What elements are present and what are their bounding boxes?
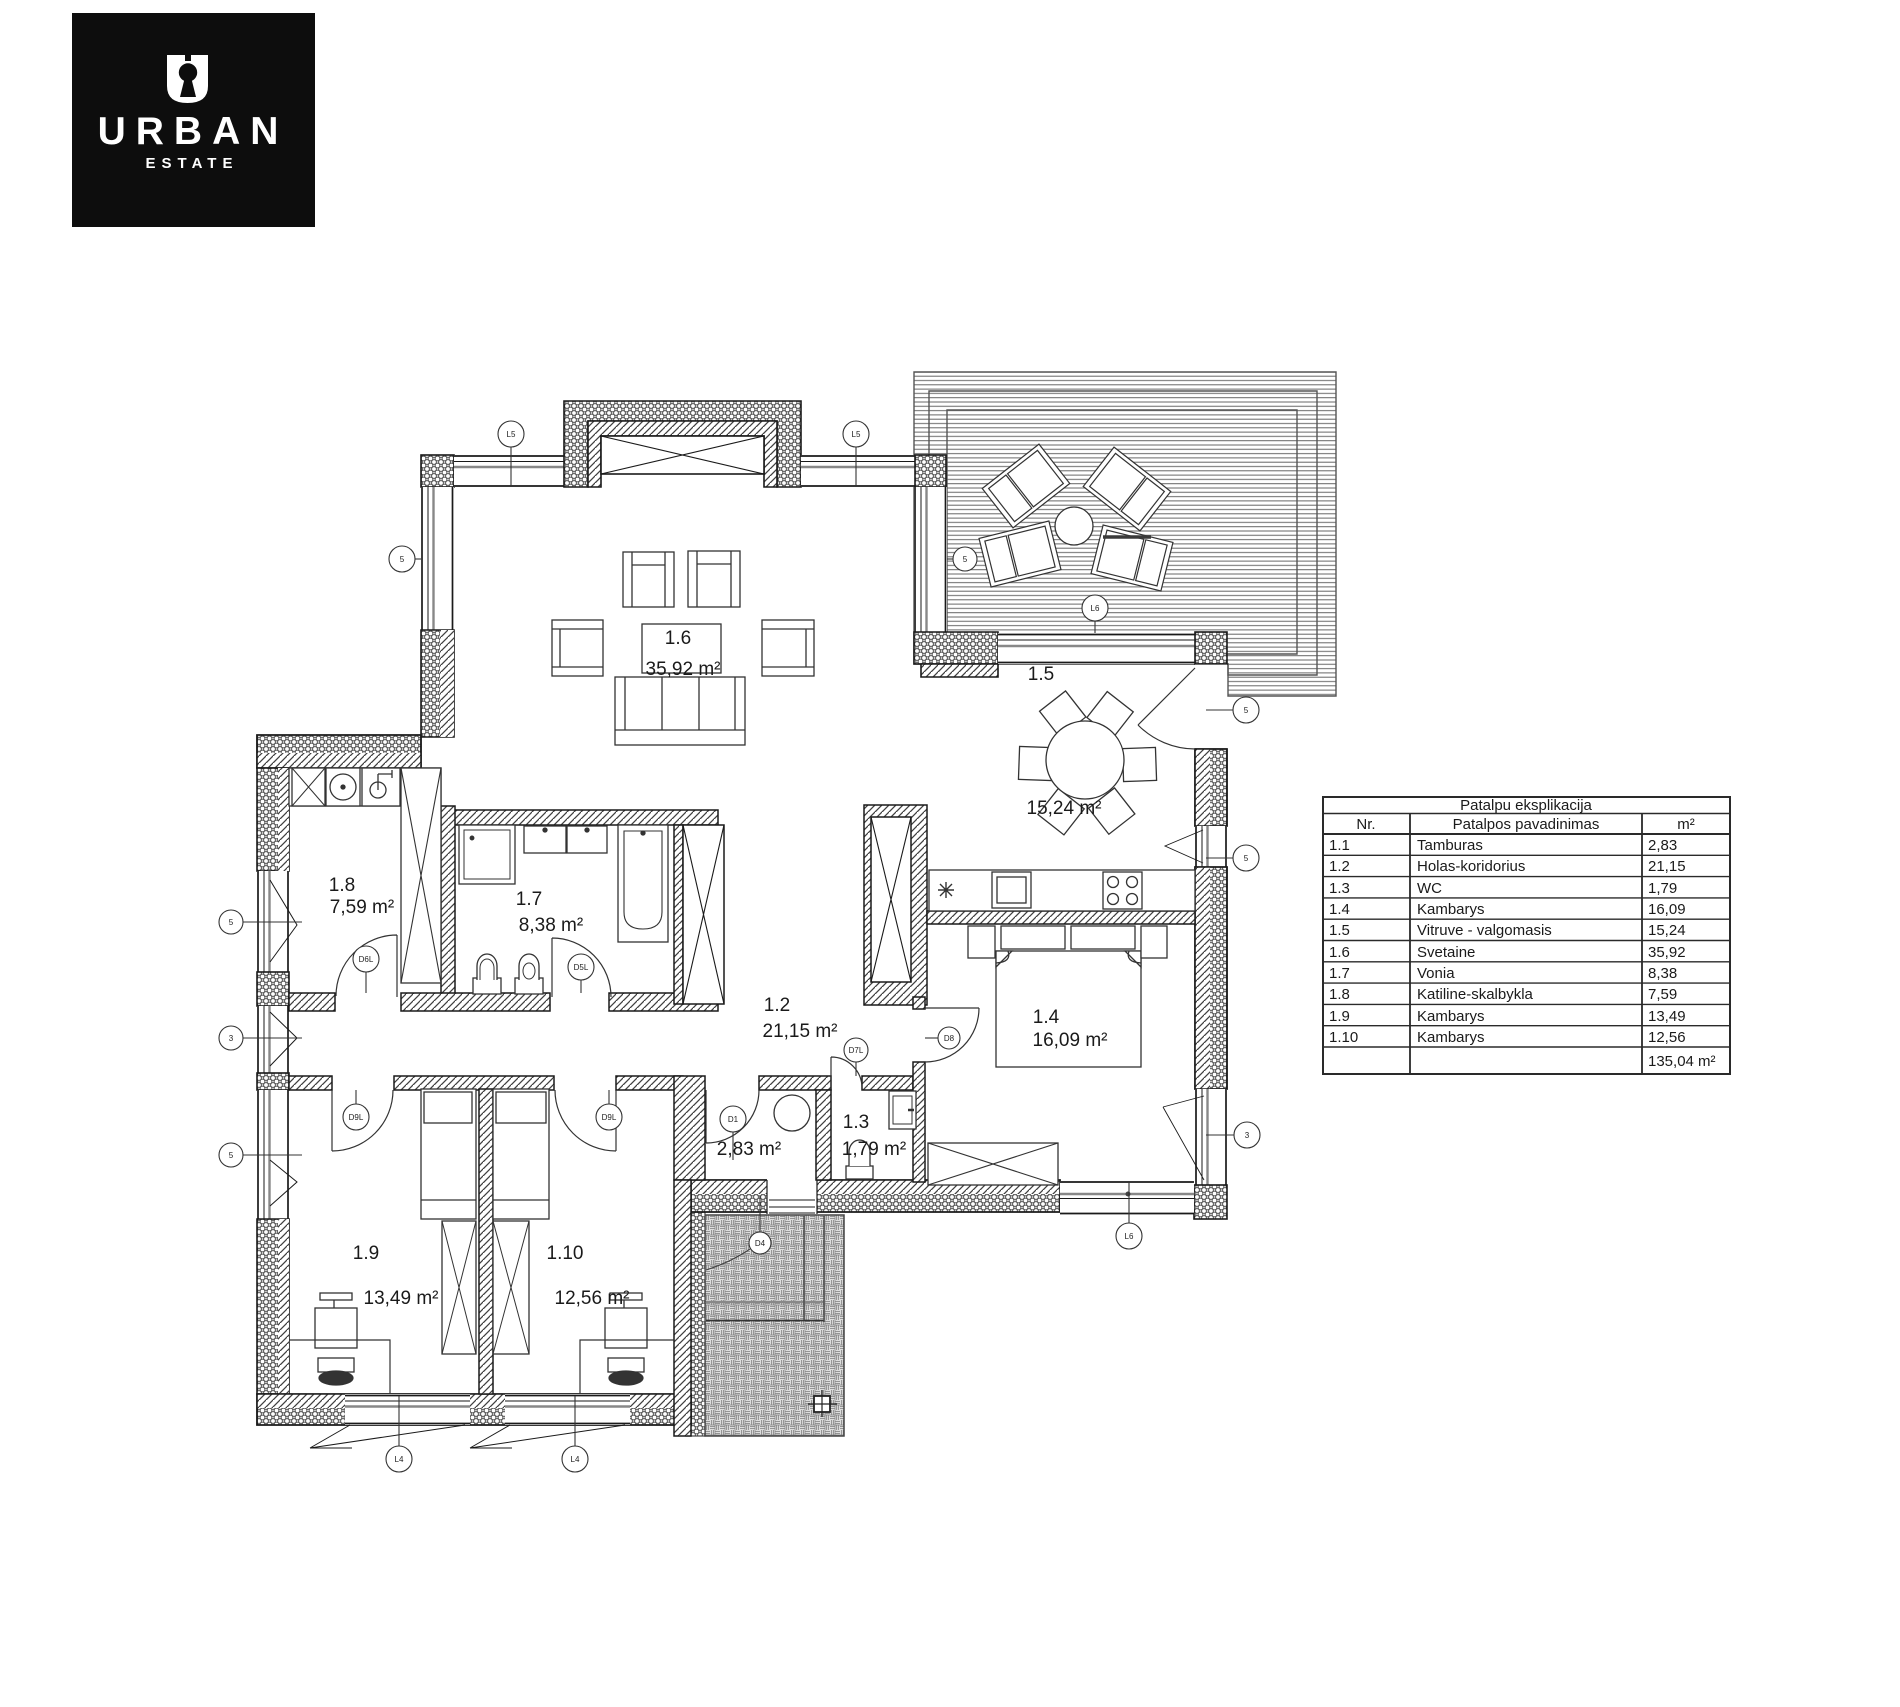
svg-text:12,56 m²: 12,56 m² bbox=[555, 1288, 630, 1309]
svg-text:8,38 m²: 8,38 m² bbox=[519, 915, 583, 936]
svg-text:ESTATE: ESTATE bbox=[146, 155, 239, 172]
svg-text:135,04 m²: 135,04 m² bbox=[1648, 1053, 1716, 1070]
svg-text:L5: L5 bbox=[852, 430, 861, 439]
svg-text:1.2: 1.2 bbox=[764, 995, 790, 1016]
svg-text:3: 3 bbox=[1245, 1131, 1250, 1140]
svg-text:5: 5 bbox=[229, 1151, 234, 1160]
svg-text:Kambarys: Kambarys bbox=[1417, 1008, 1485, 1025]
svg-text:1.3: 1.3 bbox=[843, 1112, 869, 1133]
svg-text:1.8: 1.8 bbox=[329, 875, 355, 896]
svg-text:5: 5 bbox=[963, 555, 968, 564]
svg-text:15,24 m²: 15,24 m² bbox=[1027, 798, 1102, 819]
svg-text:m²: m² bbox=[1677, 816, 1695, 833]
svg-text:1.6: 1.6 bbox=[665, 628, 691, 649]
svg-text:1.9: 1.9 bbox=[353, 1243, 379, 1264]
svg-text:13,49 m²: 13,49 m² bbox=[364, 1288, 439, 1309]
svg-text:5: 5 bbox=[400, 555, 405, 564]
svg-text:21,15 m²: 21,15 m² bbox=[763, 1021, 838, 1042]
svg-text:7,59 m²: 7,59 m² bbox=[330, 897, 394, 918]
svg-text:1.5: 1.5 bbox=[1329, 922, 1350, 939]
svg-text:L4: L4 bbox=[395, 1455, 404, 1464]
svg-text:1.5: 1.5 bbox=[1028, 664, 1054, 685]
svg-text:1,79: 1,79 bbox=[1648, 880, 1677, 897]
svg-text:21,15: 21,15 bbox=[1648, 858, 1686, 875]
svg-text:1.7: 1.7 bbox=[516, 889, 542, 910]
svg-text:12,56: 12,56 bbox=[1648, 1029, 1686, 1046]
svg-text:Katiline-skalbykla: Katiline-skalbykla bbox=[1417, 986, 1534, 1003]
svg-text:Kambarys: Kambarys bbox=[1417, 901, 1485, 918]
svg-text:1.10: 1.10 bbox=[1329, 1029, 1358, 1046]
svg-text:13,49: 13,49 bbox=[1648, 1008, 1686, 1025]
svg-text:5: 5 bbox=[1244, 854, 1249, 863]
svg-text:D8: D8 bbox=[944, 1034, 955, 1043]
svg-text:1.4: 1.4 bbox=[1329, 901, 1350, 918]
svg-text:L6: L6 bbox=[1091, 604, 1100, 613]
svg-text:Patalpos pavadinimas: Patalpos pavadinimas bbox=[1453, 816, 1600, 833]
svg-text:D9L: D9L bbox=[349, 1113, 364, 1122]
svg-text:WC: WC bbox=[1417, 880, 1442, 897]
svg-text:D7L: D7L bbox=[849, 1046, 864, 1055]
svg-text:16,09 m²: 16,09 m² bbox=[1033, 1030, 1108, 1051]
svg-text:Nr.: Nr. bbox=[1356, 816, 1375, 833]
svg-text:1.7: 1.7 bbox=[1329, 965, 1350, 982]
svg-text:Holas-koridorius: Holas-koridorius bbox=[1417, 858, 1525, 875]
svg-text:1.4: 1.4 bbox=[1033, 1007, 1060, 1028]
svg-text:1.9: 1.9 bbox=[1329, 1008, 1350, 1025]
svg-text:D5L: D5L bbox=[574, 963, 589, 972]
svg-text:3: 3 bbox=[229, 1034, 234, 1043]
svg-text:5: 5 bbox=[229, 918, 234, 927]
svg-text:L6: L6 bbox=[1125, 1232, 1134, 1241]
svg-text:Kambarys: Kambarys bbox=[1417, 1029, 1485, 1046]
svg-text:35,92: 35,92 bbox=[1648, 944, 1686, 961]
svg-text:Tamburas: Tamburas bbox=[1417, 837, 1483, 854]
svg-text:L4: L4 bbox=[571, 1455, 580, 1464]
svg-text:2,83 m²: 2,83 m² bbox=[717, 1139, 781, 1160]
svg-text:D1: D1 bbox=[728, 1115, 739, 1124]
svg-text:Vitruve - valgomasis: Vitruve - valgomasis bbox=[1417, 922, 1552, 939]
svg-text:D4: D4 bbox=[755, 1239, 766, 1248]
svg-text:URBAN: URBAN bbox=[98, 110, 289, 153]
svg-text:L5: L5 bbox=[507, 430, 516, 439]
svg-text:16,09: 16,09 bbox=[1648, 901, 1686, 918]
svg-text:1.2: 1.2 bbox=[1329, 858, 1350, 875]
svg-text:1,79 m²: 1,79 m² bbox=[842, 1139, 906, 1160]
svg-text:Patalpu eksplikacija: Patalpu eksplikacija bbox=[1460, 797, 1592, 814]
svg-text:Vonia: Vonia bbox=[1417, 965, 1455, 982]
svg-text:1.6: 1.6 bbox=[1329, 944, 1350, 961]
svg-text:1.1: 1.1 bbox=[1329, 837, 1350, 854]
svg-text:1.8: 1.8 bbox=[1329, 986, 1350, 1003]
svg-text:Svetaine: Svetaine bbox=[1417, 944, 1475, 961]
svg-text:35,92 m²: 35,92 m² bbox=[646, 659, 721, 680]
svg-text:5: 5 bbox=[1244, 706, 1249, 715]
svg-text:8,38: 8,38 bbox=[1648, 965, 1677, 982]
svg-text:D9L: D9L bbox=[602, 1113, 617, 1122]
svg-text:2,83: 2,83 bbox=[1648, 837, 1677, 854]
svg-text:7,59: 7,59 bbox=[1648, 986, 1677, 1003]
svg-text:1.10: 1.10 bbox=[547, 1243, 584, 1264]
svg-text:1.3: 1.3 bbox=[1329, 880, 1350, 897]
svg-text:15,24: 15,24 bbox=[1648, 922, 1686, 939]
svg-text:D6L: D6L bbox=[359, 955, 374, 964]
